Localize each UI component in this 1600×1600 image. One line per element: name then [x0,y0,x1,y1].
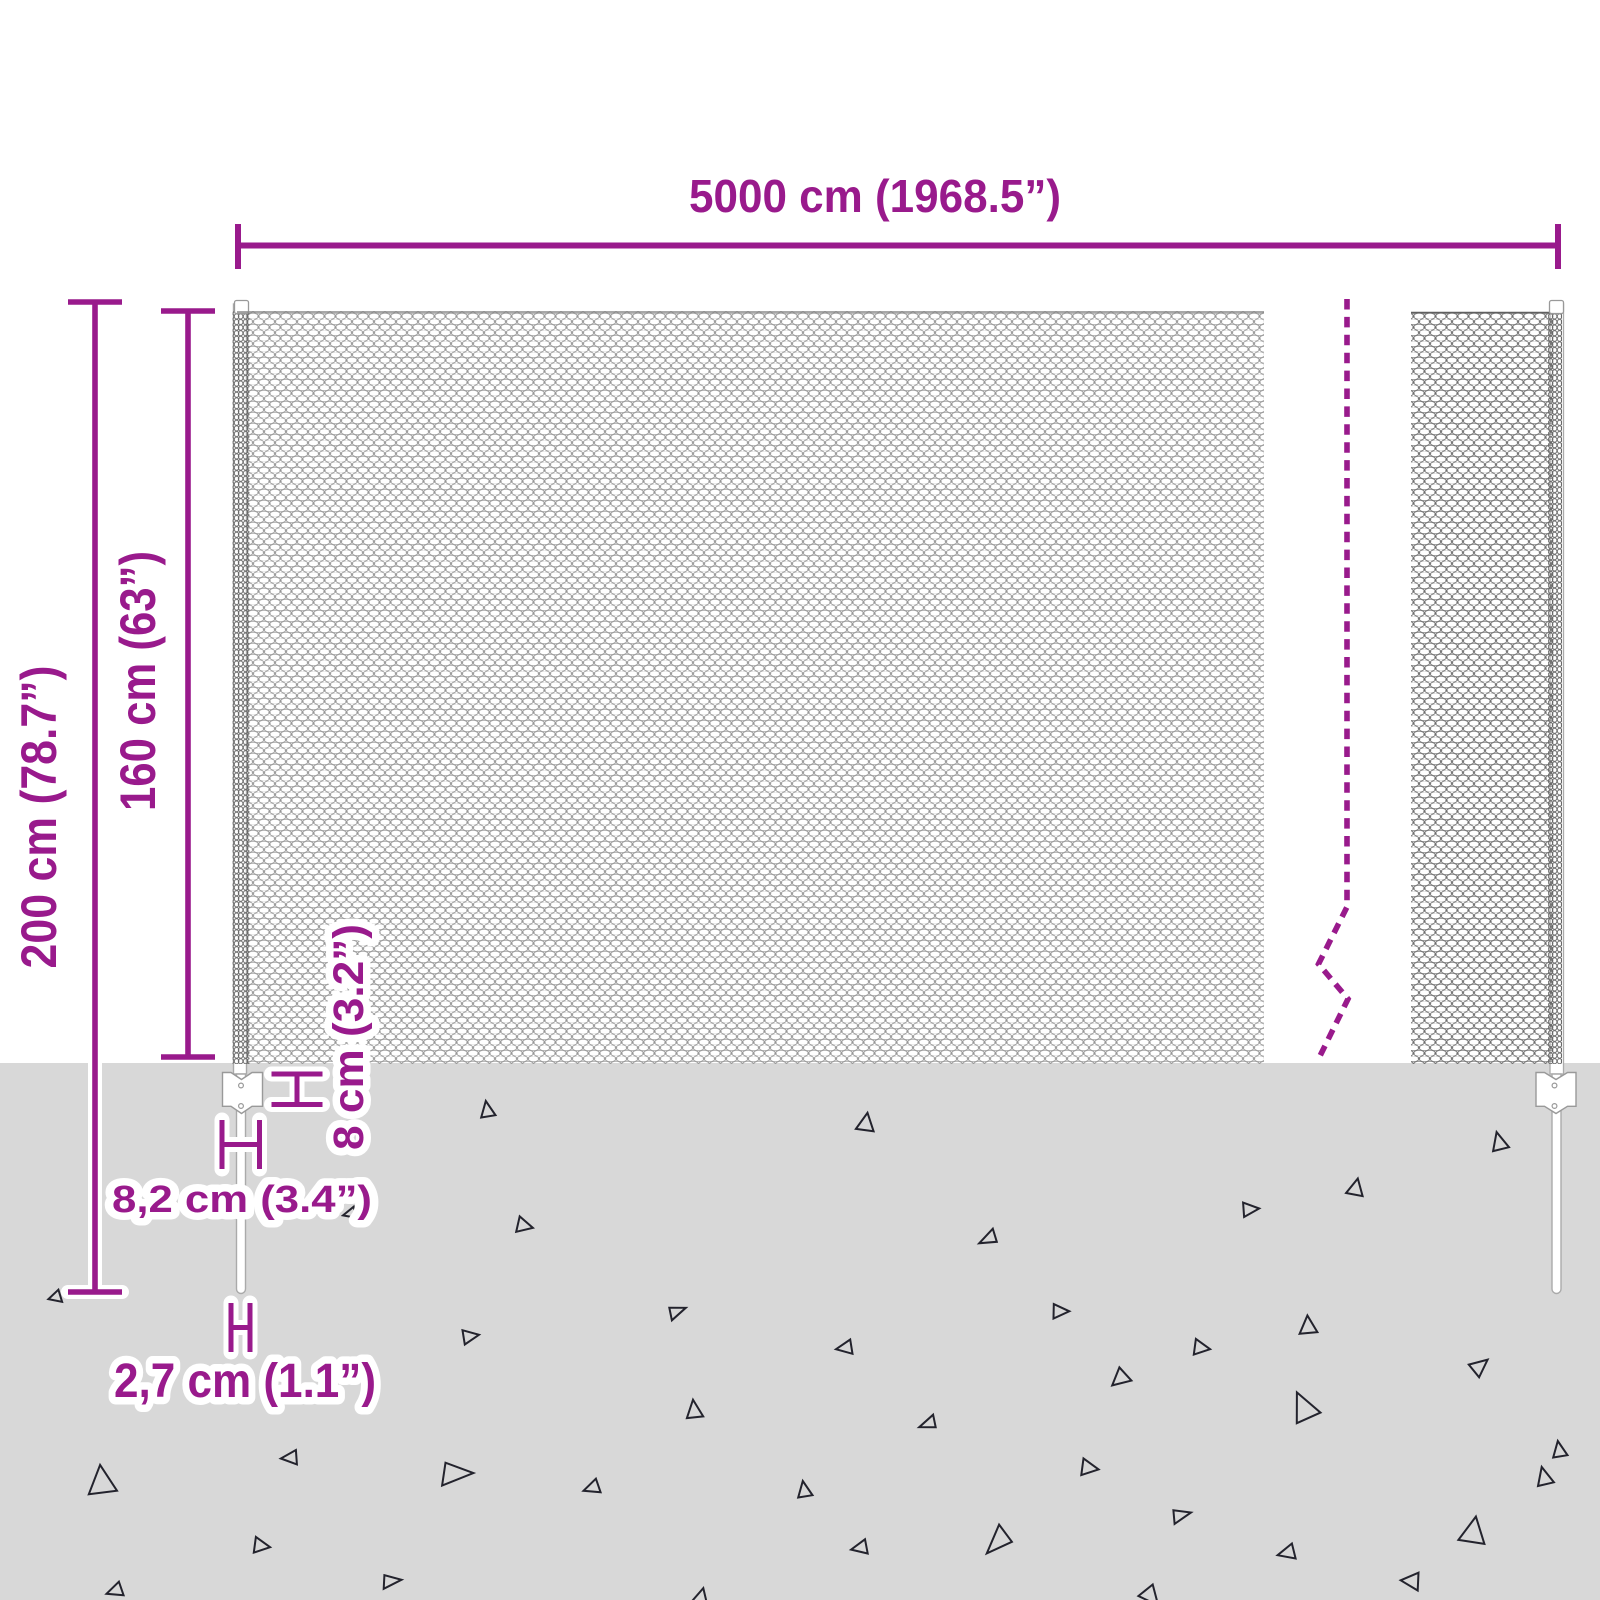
svg-text:200 cm (78.7”): 200 cm (78.7”) [11,666,67,969]
svg-text:8 cm (3.2”): 8 cm (3.2”) [325,924,373,1150]
svg-text:160 cm (63”): 160 cm (63”) [110,551,166,811]
svg-text:8,2 cm (3.4”): 8,2 cm (3.4”) [112,1179,372,1221]
svg-text:2,7 cm (1.1”): 2,7 cm (1.1”) [114,1355,376,1408]
svg-text:5000 cm (1968.5”): 5000 cm (1968.5”) [689,170,1061,222]
